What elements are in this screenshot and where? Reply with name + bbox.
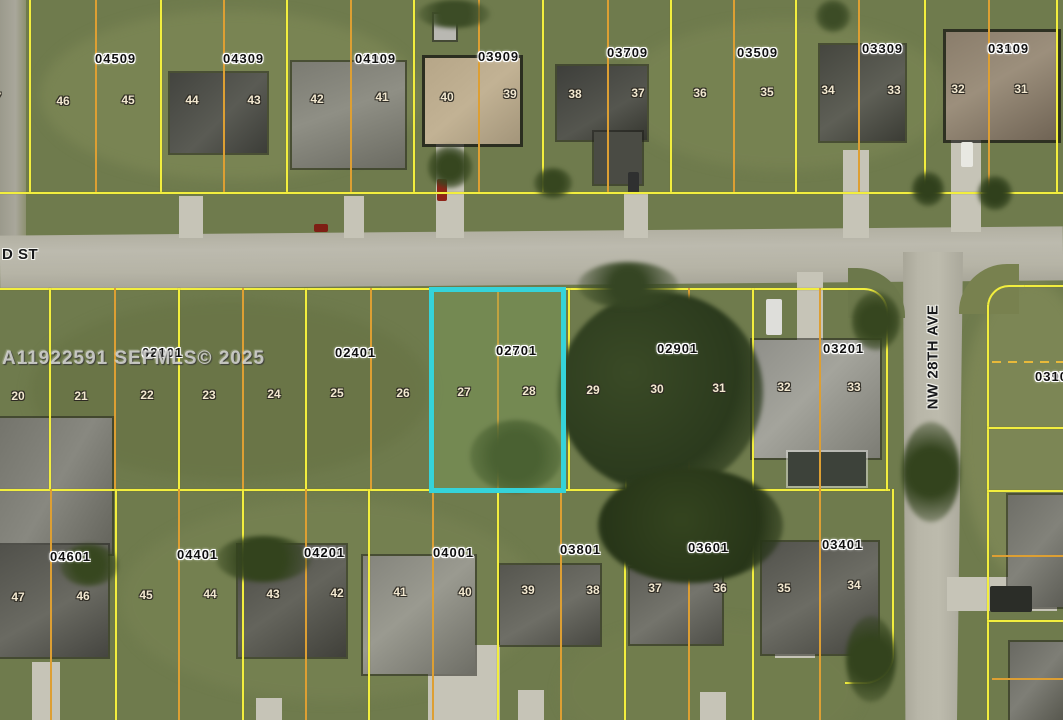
lot-number: 24: [267, 387, 280, 401]
subject-parcel-highlight: [429, 287, 566, 493]
lot-number: 20: [11, 389, 24, 403]
driveway: [518, 690, 544, 720]
parcel-line: [370, 288, 372, 489]
parcel-line: [988, 0, 990, 194]
tree-canopy: [216, 536, 311, 582]
lot-number: 31: [712, 381, 725, 395]
parcel-line: [178, 489, 180, 720]
parcel-line: [858, 0, 860, 194]
lot-number: 39: [503, 87, 516, 101]
lot-number: 25: [330, 386, 343, 400]
dark-car-bottom: [990, 586, 1032, 612]
lot-number: 40: [440, 90, 453, 104]
lot-number: 44: [185, 93, 198, 107]
parcel-line: [368, 489, 370, 720]
mls-watermark: A11922591 SEFMLS© 2025: [2, 348, 265, 370]
block-boundary: [0, 192, 1063, 194]
lot-number: 35: [760, 85, 773, 99]
driveway: [256, 698, 282, 720]
lot-number: 46: [56, 94, 69, 108]
lot-number: 35: [777, 581, 790, 595]
parcel-line-dashed: [992, 361, 1063, 363]
lot-number: 44: [203, 587, 216, 601]
lot-number: 27: [457, 385, 470, 399]
lot-number: 45: [121, 93, 134, 107]
parcel-line: [987, 620, 1063, 622]
parcel-line: [50, 489, 52, 720]
lot-number: 42: [310, 92, 323, 106]
lot-number: 45: [139, 588, 152, 602]
white-car: [961, 142, 973, 167]
lot-number: 39: [521, 583, 534, 597]
house: [0, 418, 112, 554]
lot-number: 33: [847, 380, 860, 394]
tree-canopy: [428, 146, 472, 188]
lot-number: 41: [393, 585, 406, 599]
block-boundary: [0, 288, 852, 290]
parcel-line: [114, 288, 116, 489]
driveway: [700, 692, 726, 720]
parcel-line: [992, 555, 1063, 557]
driveway: [843, 150, 869, 238]
tree-canopy: [418, 0, 490, 28]
house: [1010, 642, 1063, 720]
lot-number: 29: [586, 383, 599, 397]
lot-number: 30: [650, 382, 663, 396]
parcel-line: [542, 0, 544, 194]
parcel-line: [795, 0, 797, 194]
lot-number: 28: [522, 384, 535, 398]
lot-number: 36: [713, 581, 726, 595]
lot-number: 32: [951, 82, 964, 96]
tree-canopy: [598, 468, 783, 583]
lot-number: 7: [0, 90, 1, 104]
lot-number: 43: [266, 587, 279, 601]
lot-number: 31: [1014, 82, 1027, 96]
parcel-line: [560, 489, 562, 720]
parcel-line: [992, 678, 1063, 680]
driveway: [179, 196, 203, 238]
dark-car: [628, 172, 639, 194]
parcel-line: [178, 288, 180, 489]
parcel-line: [160, 0, 162, 194]
parcel-line: [892, 489, 894, 655]
parcel-line: [987, 305, 989, 720]
parcel-line: [350, 0, 352, 194]
pool-enclosure: [788, 452, 866, 486]
lot-number: 34: [847, 578, 860, 592]
house: [752, 340, 880, 458]
white-rv: [766, 299, 782, 335]
parcel-line: [223, 0, 225, 194]
aerial-parcel-map: 039790450 039790430 039790410 039790390 …: [0, 0, 1063, 720]
parcel-line: [733, 0, 735, 194]
tree-canopy: [978, 176, 1012, 210]
tree-canopy: [578, 262, 678, 308]
lot-number: 38: [568, 87, 581, 101]
lot-number: 23: [202, 388, 215, 402]
lot-number: 38: [586, 583, 599, 597]
parcel-line: [305, 288, 307, 489]
house: [170, 73, 267, 153]
lot-number: 33: [887, 83, 900, 97]
lot-number: 43: [247, 93, 260, 107]
tree-canopy: [846, 616, 896, 702]
house: [292, 62, 405, 168]
tree-canopy: [902, 422, 960, 522]
lot-number: 22: [140, 388, 153, 402]
lot-number: 21: [74, 389, 87, 403]
side-alley: [0, 0, 26, 238]
lot-number: 46: [76, 589, 89, 603]
parcel-line: [987, 490, 1063, 492]
parcel-line: [1056, 0, 1058, 194]
parcel-line: [305, 489, 307, 720]
parcel-line: [607, 0, 609, 194]
parcel-line: [115, 489, 117, 720]
lot-number: 34: [821, 83, 834, 97]
lot-number: 40: [458, 585, 471, 599]
lot-number: 36: [693, 86, 706, 100]
lot-number: 32: [777, 380, 790, 394]
parcel-line: [987, 427, 1063, 429]
parcel-line: [670, 0, 672, 194]
red-car-road: [314, 224, 328, 232]
parcel-line: [478, 0, 480, 194]
driveway: [624, 192, 648, 238]
driveway: [344, 196, 364, 238]
parcel-line: [413, 0, 415, 194]
parcel-line: [242, 288, 244, 489]
lot-number: 41: [375, 90, 388, 104]
house: [500, 565, 600, 645]
parcel-line: [49, 288, 51, 489]
tree-canopy: [912, 172, 944, 206]
parcel-line: [29, 0, 31, 194]
lot-number: 37: [648, 581, 661, 595]
parcel-line: [1025, 285, 1063, 287]
parcel-line: [924, 0, 926, 194]
street-name-d-st: D ST: [2, 246, 38, 263]
lot-number: 47: [11, 590, 24, 604]
house: [425, 58, 520, 144]
street-name-nw-28th-ave: NW 28TH AVE: [925, 305, 942, 410]
parcel-line: [95, 0, 97, 194]
tree-canopy: [816, 0, 850, 32]
parcel-line: [286, 0, 288, 194]
house: [557, 66, 647, 140]
driveway: [32, 662, 60, 720]
lot-number: 37: [631, 86, 644, 100]
parcel-line: [819, 489, 821, 720]
parcel-line: [497, 489, 499, 720]
parcel-line: [432, 489, 434, 720]
lot-number: 26: [396, 386, 409, 400]
parcel-line: [242, 489, 244, 720]
house: [363, 556, 475, 674]
parcel-line: [819, 288, 821, 489]
tree-canopy: [534, 168, 572, 198]
lot-number: 42: [330, 586, 343, 600]
